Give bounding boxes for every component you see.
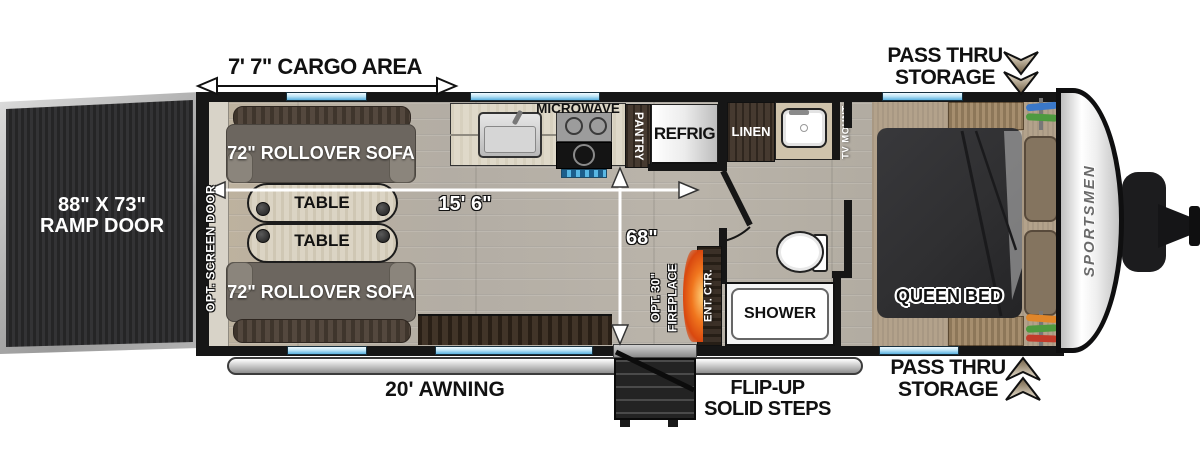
table-2-cupholder-left xyxy=(256,229,270,243)
bed-pillow-top xyxy=(1024,136,1058,222)
burner-right-icon xyxy=(589,117,607,135)
linen-label: LINEN xyxy=(727,102,775,162)
fireplace-label-line1: OPT. 30" xyxy=(648,250,664,345)
burner-left-icon xyxy=(565,117,583,135)
steps-label-line1: FLIP-UP xyxy=(730,378,804,399)
sofa-bottom-label: 72" ROLLOVER SOFA xyxy=(226,262,416,322)
sofa-top-label: 72" ROLLOVER SOFA xyxy=(226,124,416,183)
shower-label: SHOWER xyxy=(731,288,829,340)
queen-bed-label: QUEEN BED xyxy=(877,283,1022,309)
window-top-garage xyxy=(286,92,367,101)
burner-big-icon xyxy=(573,144,595,166)
pass-thru-mat-top xyxy=(948,102,1024,130)
toilet-bowl xyxy=(776,231,824,273)
pass-thru-bottom-line2: STORAGE xyxy=(898,379,998,401)
cargo-area-dimension-label: 7' 7" CARGO AREA xyxy=(205,52,445,82)
width-dim-label: 68" xyxy=(626,226,670,250)
bath-sink-drain-icon xyxy=(800,124,808,132)
stove-vent-strip xyxy=(561,169,607,178)
pass-thru-label-bottom: PASS THRU STORAGE xyxy=(872,356,1024,402)
hitch-jack xyxy=(1189,206,1200,246)
propane-cover xyxy=(1122,172,1166,272)
entry-threshold xyxy=(613,344,697,358)
paddle-red-icon xyxy=(1026,334,1058,342)
wall-bath-cross xyxy=(832,271,852,278)
ramp-door-size-text: 88" X 73" xyxy=(58,195,146,216)
sofa-bottom-backrest xyxy=(233,319,411,343)
steps-label: FLIP-UP SOLID STEPS xyxy=(690,374,845,424)
wall-linen-left xyxy=(718,102,727,170)
pass-thru-bottom-line1: PASS THRU xyxy=(890,357,1005,379)
pantry-label: PANTRY xyxy=(625,104,651,168)
table-1-cupholder-right xyxy=(376,202,390,216)
window-bottom-bedroom xyxy=(879,346,959,355)
pass-thru-top-line1: PASS THRU xyxy=(887,45,1002,67)
fireplace-label-line2: FIREPLACE xyxy=(665,250,681,345)
steps-foot-left xyxy=(620,420,630,427)
awning-tube xyxy=(227,357,863,375)
steps-label-line2: SOLID STEPS xyxy=(704,399,831,420)
bench-cabinet xyxy=(418,314,612,345)
pass-thru-label-top: PASS THRU STORAGE xyxy=(870,44,1020,90)
bed-pillow-bottom xyxy=(1024,230,1058,316)
window-top-bedroom xyxy=(882,92,963,101)
entry-steps xyxy=(614,358,696,420)
ent-ctr-label: ENT. CTR. xyxy=(699,248,720,344)
steps-foot-right xyxy=(668,420,678,427)
ramp-door-label: 88" X 73" RAMP DOOR xyxy=(18,188,186,244)
pass-thru-mat-bottom xyxy=(948,316,1024,346)
table-2-cupholder-right xyxy=(376,229,390,243)
table-1-cupholder-left xyxy=(256,202,270,216)
wall-bedroom-divider xyxy=(844,200,852,278)
ramp-door-name-text: RAMP DOOR xyxy=(40,216,164,237)
window-top-kitchen xyxy=(470,92,600,101)
rv-floorplan: 88" X 73" RAMP DOOR 7' 7" CARGO AREA 20'… xyxy=(0,0,1200,470)
refrigerator-label: REFRIG xyxy=(651,104,718,164)
awning-label: 20' AWNING xyxy=(330,377,560,403)
pass-thru-top-line2: STORAGE xyxy=(895,67,995,89)
wall-under-refrig xyxy=(648,164,727,171)
bath-faucet-icon xyxy=(789,110,809,115)
brand-logo: SPORTSMEN xyxy=(1070,118,1110,323)
wall-bedroom-stub-top xyxy=(844,102,852,128)
length-dim-label: 15' 6" xyxy=(425,192,505,216)
screen-door-label: OPT. SCREEN DOOR xyxy=(202,150,220,346)
window-bottom-garage xyxy=(287,346,367,355)
table-1-label: TABLE xyxy=(272,192,372,214)
table-2-label: TABLE xyxy=(272,230,372,252)
microwave-label: MICROWAVE xyxy=(533,101,623,117)
kitchen-sink-basin xyxy=(484,126,536,153)
window-bottom-main xyxy=(435,346,593,355)
